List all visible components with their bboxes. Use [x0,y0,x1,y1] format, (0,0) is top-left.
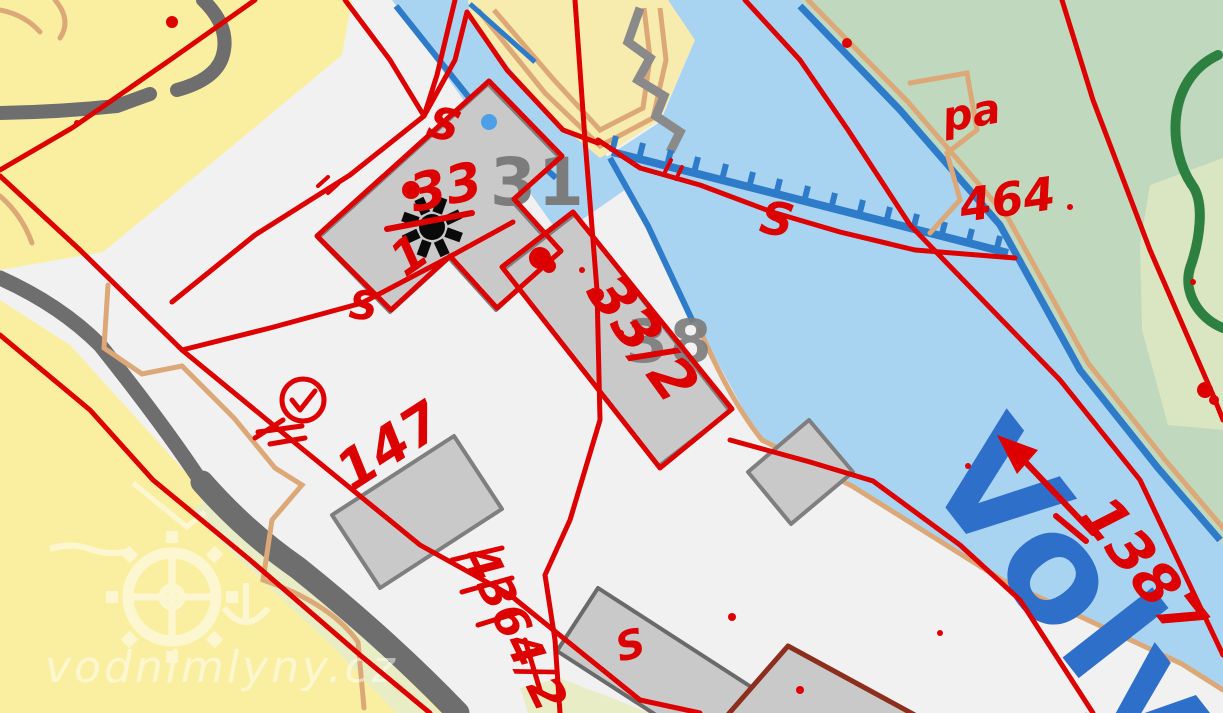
parcel-31-label: 31 [490,144,586,221]
red-dot [1209,395,1219,405]
red-dot [728,613,736,621]
map-canvas[interactable]: 31 38 Volyňka [0,0,1223,713]
red-dot [74,120,80,126]
red-dot [1190,279,1196,285]
red-dot [937,630,943,636]
red-dot [166,16,178,28]
red-dot [842,38,852,48]
red-section-mark: S [347,282,380,330]
red-dot [1067,204,1073,210]
red-dot [579,267,585,273]
red-dot [796,686,804,694]
watermark-text: vodnimlyny.cz [45,642,398,693]
blue-dot-marker [481,114,497,130]
red-dot [965,463,971,469]
red-dot [1197,382,1213,398]
red-dot [542,259,556,273]
red-label-pa: pa [937,83,1004,142]
map-viewport[interactable]: 31 38 Volyňka [0,0,1223,713]
